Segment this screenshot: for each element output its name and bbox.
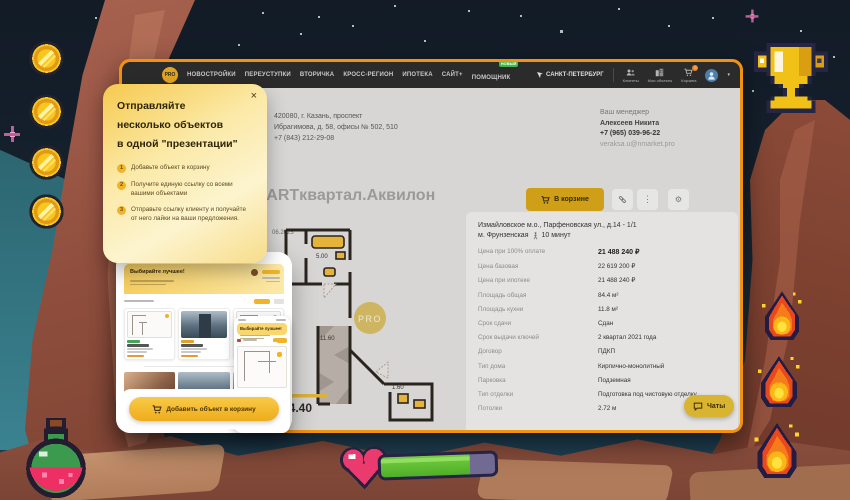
nav-item-krossregion[interactable]: КРОСС-РЕГИОН xyxy=(343,72,393,78)
potion-icon xyxy=(22,418,90,498)
add-to-cart-button[interactable]: Добавить объект в корзину xyxy=(129,397,279,421)
star xyxy=(668,25,670,27)
star xyxy=(520,15,522,17)
in-cart-label: В корзине xyxy=(554,196,589,203)
detail-row: Тип домаКирпично-монолитный xyxy=(478,359,726,373)
detail-row: ДоговорПДКП xyxy=(478,345,726,359)
detail-row: Площадь кухни11.8 м² xyxy=(478,302,726,316)
star xyxy=(95,17,97,19)
office-address-line2: Ибрагимова, д. 58, офисы № 502, 510 xyxy=(274,123,398,134)
flame-icon xyxy=(758,356,800,410)
room-area-label: 5.00 xyxy=(316,254,328,260)
manager-label: Ваш менеджер xyxy=(600,108,675,119)
mini-phone-title: Выбирайте лучшее! xyxy=(240,326,284,331)
detail-row: Площадь общая84.4 м² xyxy=(478,288,726,302)
star xyxy=(468,10,470,12)
office-address-block: 420080, г. Казань, проспект Ибрагимова, … xyxy=(274,112,398,145)
tooltip-step: 2 Получите единую ссылку со всеми вашими… xyxy=(117,180,253,198)
detail-row: Цена базовая22 619 200 ₽ xyxy=(478,260,726,274)
step-text: Получите единую ссылку со всеми вашими о… xyxy=(131,180,253,198)
walk-time: 10 минут xyxy=(542,232,571,239)
star xyxy=(352,25,354,27)
mini-phone-floorplan xyxy=(237,346,287,388)
star xyxy=(424,40,426,42)
walking-person-icon xyxy=(533,232,538,240)
nav-item-pomoshchnik-wrap[interactable]: ПОМОЩНИК НОВЫЙ xyxy=(472,66,511,84)
health-bar-fill xyxy=(381,454,471,477)
mini-listing-card xyxy=(178,308,229,360)
cart-button[interactable]: 0 Корзина xyxy=(681,68,696,83)
floorplan-image: 5.00 11.60 1.60 84.40 PRO xyxy=(272,222,457,433)
chats-label: Чаты xyxy=(707,403,725,410)
presentation-preview-card: Выбирайте лучшее! xyxy=(116,252,292,433)
manager-name: Алексеев Никита xyxy=(600,119,675,130)
pink-sparkle-star xyxy=(4,126,20,142)
copy-link-button[interactable] xyxy=(612,189,633,210)
user-avatar[interactable] xyxy=(705,69,718,82)
city-selector[interactable]: САНКТ-ПЕТЕРБУРГ xyxy=(537,72,604,78)
cart-icon xyxy=(541,196,550,204)
pink-sparkle-star xyxy=(746,10,759,23)
mini-avatar xyxy=(251,269,258,276)
link-icon xyxy=(617,194,628,205)
mini-listing-card xyxy=(124,308,175,360)
chats-button[interactable]: Чаты xyxy=(684,395,734,417)
details-rows: Цена при 100% оплате21 488 240 ₽ Цена ба… xyxy=(478,245,726,416)
health-bar-track xyxy=(378,450,499,480)
room-area-label: 11.60 xyxy=(320,336,335,342)
property-address: Измайловское м.о., Парфеновская ул., д.1… xyxy=(478,221,726,232)
in-cart-button[interactable]: В корзине xyxy=(526,188,604,211)
star xyxy=(318,16,320,18)
star xyxy=(560,30,563,33)
nav-item-pomoshchnik[interactable]: ПОМОЩНИК xyxy=(472,75,511,81)
metro-station: м. Фрунзенская xyxy=(478,232,529,239)
cart-label: Корзина xyxy=(681,78,696,83)
detail-row: Срок выдачи ключей2 квартал 2021 года xyxy=(478,331,726,345)
mini-site-header: Выбирайте лучшее! xyxy=(124,264,284,294)
settings-button[interactable]: ⚙ xyxy=(668,189,689,210)
coin-icon xyxy=(28,93,65,130)
step-number: 3 xyxy=(117,206,126,215)
office-address-line1: 420080, г. Казань, проспект xyxy=(274,112,398,123)
add-to-cart-label: Добавить объект в корзину xyxy=(166,406,255,413)
nav-item-vtorichka[interactable]: ВТОРИЧКА xyxy=(300,72,334,78)
nav-divider xyxy=(613,68,614,82)
manager-block: Ваш менеджер Алексеев Никита +7 (965) 03… xyxy=(600,108,675,150)
people-icon xyxy=(626,68,635,77)
tooltip-step: 1 Добавьте объект в корзину xyxy=(117,163,253,173)
tooltip-step: 3 Отправьте ссылку клиенту и получайте о… xyxy=(117,205,253,223)
trophy-icon xyxy=(750,38,832,122)
kebab-icon: ⋮ xyxy=(643,194,652,205)
star xyxy=(800,30,802,32)
cart-icon xyxy=(152,405,162,414)
gear-icon: ⚙ xyxy=(675,195,682,204)
close-icon[interactable]: × xyxy=(251,90,257,102)
health-bar xyxy=(339,441,509,495)
metro-line: м. Фрунзенская 10 минут xyxy=(478,232,726,240)
nav-item-sait[interactable]: САЙТ+ xyxy=(442,72,463,78)
location-arrow-icon xyxy=(537,72,543,78)
star xyxy=(618,8,620,10)
star xyxy=(238,44,240,46)
nav-item-pereustupki[interactable]: ПЕРЕУСТУПКИ xyxy=(245,72,291,78)
mini-site-title: Выбирайте лучшее! xyxy=(130,269,185,275)
flame-icon xyxy=(762,291,802,343)
listing-title: , ARTквартал.Аквилон xyxy=(258,187,435,205)
coin-icon xyxy=(28,193,65,230)
nav-item-ipoteka[interactable]: ИПОТЕКА xyxy=(402,72,432,78)
mini-toolbar xyxy=(124,296,284,306)
more-actions-button[interactable]: ⋮ xyxy=(637,189,658,210)
presentation-tooltip: × Отправляйте несколько объектов в одной… xyxy=(103,84,267,263)
pro-logo[interactable]: PRO xyxy=(162,67,178,83)
star xyxy=(712,17,714,19)
chevron-down-icon[interactable]: ▾ xyxy=(727,72,730,78)
coin-icon xyxy=(28,144,65,181)
flame-icon xyxy=(754,423,800,481)
clients-button[interactable]: Клиенты xyxy=(623,68,639,83)
clients-label: Клиенты xyxy=(623,78,639,83)
detail-row: Цена при 100% оплате21 488 240 ₽ xyxy=(478,245,726,260)
chat-bubble-icon xyxy=(693,402,703,411)
detail-row: Срок сдачиСдан xyxy=(478,316,726,330)
nav-item-novostroyki[interactable]: НОВОСТРОЙКИ xyxy=(187,72,236,78)
cta-panel: Добавить объект в корзину xyxy=(120,389,288,429)
step-number: 1 xyxy=(117,164,126,173)
star xyxy=(833,56,835,58)
star xyxy=(394,5,396,7)
pro-watermark: PRO xyxy=(358,314,382,324)
detail-row: ПарковкаПодземная xyxy=(478,373,726,387)
detail-row: Цена при ипотеке21 488 240 ₽ xyxy=(478,274,726,288)
my-objects-label: Мои объекты xyxy=(648,78,673,83)
mini-phone-header: Выбирайте лучшее! xyxy=(237,323,287,335)
person-icon xyxy=(707,71,716,80)
star xyxy=(262,12,264,14)
star xyxy=(300,33,302,35)
manager-email[interactable]: veraksa.u@nmarket.pro xyxy=(600,140,675,151)
room-area-label: 1.60 xyxy=(392,385,404,391)
step-text: Отправьте ссылку клиенту и получайте от … xyxy=(131,205,253,223)
step-text: Добавьте объект в корзину xyxy=(131,163,210,173)
coin-icon xyxy=(28,40,65,77)
new-badge: НОВЫЙ xyxy=(499,60,519,67)
my-objects-button[interactable]: Мои объекты xyxy=(648,68,673,83)
city-label: САНКТ-ПЕТЕРБУРГ xyxy=(546,72,604,78)
office-phone: +7 (843) 212-29-08 xyxy=(274,134,398,145)
screenshot-root: PRO НОВОСТРОЙКИ ПЕРЕУСТУПКИ ВТОРИЧКА КРО… xyxy=(0,0,850,500)
cart-count-badge: 0 xyxy=(692,65,698,71)
tooltip-title: Отправляйте несколько объектов в одной "… xyxy=(117,97,253,154)
buildings-icon xyxy=(655,68,664,77)
manager-phone: +7 (965) 039-96-22 xyxy=(600,129,675,140)
step-number: 2 xyxy=(117,181,126,190)
tooltip-steps: 1 Добавьте объект в корзину 2 Получите е… xyxy=(117,163,253,224)
